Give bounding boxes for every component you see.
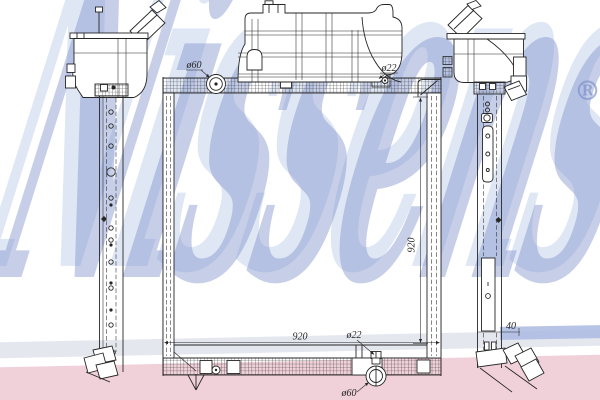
- left-bottom-bracket: [84, 346, 118, 382]
- dim-label: ø22: [346, 330, 362, 341]
- right-side-column: [474, 82, 505, 368]
- dim-bottom-pipe-diameter: ø22: [346, 330, 375, 355]
- expansion-tank-front: [238, 1, 402, 84]
- dim-filler-neck-diameter: ø60: [186, 60, 210, 78]
- dim-label: ø60: [186, 60, 202, 71]
- dim-core-height: 920: [407, 97, 429, 344]
- left-core-channel: [163, 93, 174, 358]
- dim-label: 920: [293, 332, 308, 343]
- right-core-channel: [427, 93, 441, 358]
- right-side-view: [443, 1, 544, 393]
- dim-drain-diameter: ø60: [341, 383, 369, 400]
- radiator-drawing-canvas: Nissens Nissens ®: [0, 0, 600, 400]
- left-side-column: [95, 84, 128, 372]
- right-bottom-bracket: [476, 343, 544, 392]
- bottom-pipe-fitting: [371, 352, 381, 359]
- dim-label: 40: [506, 321, 516, 332]
- dim-core-width: 920: [165, 332, 440, 343]
- dim-label: ø60: [341, 388, 357, 399]
- dim-label: 920: [407, 238, 418, 253]
- left-side-view: [66, 1, 167, 383]
- expansion-tank-left: [66, 1, 167, 98]
- dim-label: ø22: [381, 63, 397, 74]
- radiator-technical-drawing: ø60 ø22 920 920 ø22 40 ø60: [0, 0, 600, 400]
